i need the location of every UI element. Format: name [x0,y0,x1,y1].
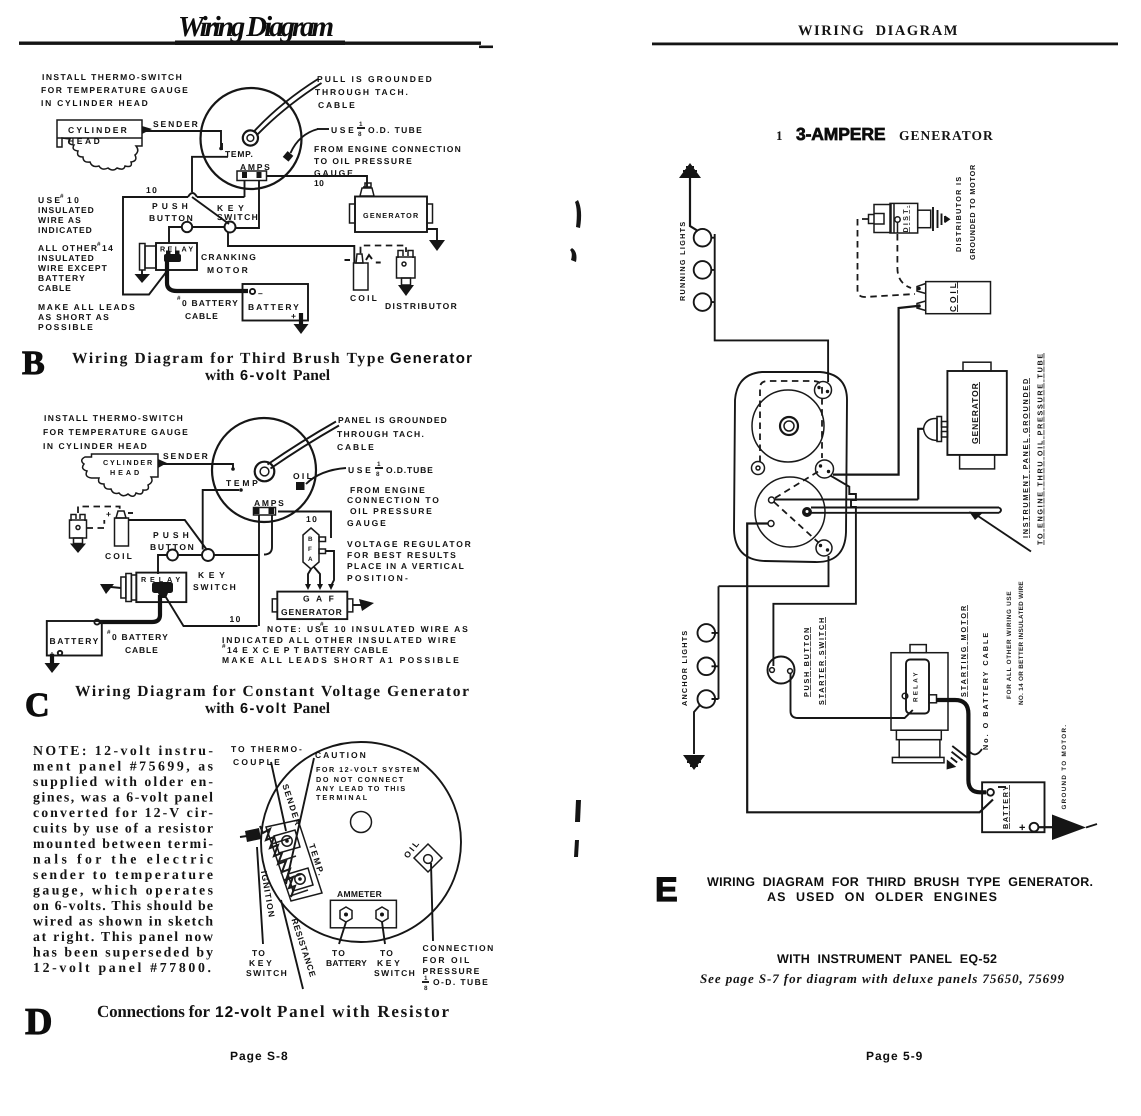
svg-text:+: + [291,311,297,321]
svg-text:#: # [177,295,181,302]
svg-text:CONNECTION TO: CONNECTION TO [347,495,440,505]
svg-text:PULL IS GROUNDED: PULL IS GROUNDED [317,74,433,84]
svg-text:FROM ENGINE: FROM ENGINE [350,485,426,495]
svg-text:AMMETER: AMMETER [337,889,383,899]
svg-text:CYLINDER: CYLINDER [68,125,128,135]
svg-text:Panel: Panel [293,700,331,717]
svg-text:#: # [320,621,324,628]
svg-text:TO ENGINE THRU OIL PRESSURE TU: TO ENGINE THRU OIL PRESSURE TUBE [1036,353,1045,545]
svg-text:CAUTION: CAUTION [315,750,367,760]
svg-text:1: 1 [424,975,428,982]
svg-text:with: with [205,700,235,717]
svg-text:GENERATOR: GENERATOR [281,607,343,617]
svg-text:+: + [1019,822,1027,834]
svg-text:KEY: KEY [377,958,401,968]
svg-text:INDICATED: INDICATED [38,225,93,235]
svg-text:PLACE IN A VERTICAL: PLACE IN A VERTICAL [347,561,465,571]
svg-text:DO NOT CONNECT: DO NOT CONNECT [316,775,404,784]
svg-text:BATTERY: BATTERY [326,958,368,968]
svg-text:INSULATED: INSULATED [38,253,95,263]
svg-text:TO: TO [380,948,394,958]
svg-text:SWITCH: SWITCH [193,582,237,592]
svg-text:KEY: KEY [198,570,226,580]
svg-text:Page S-8: Page S-8 [230,1049,289,1063]
svg-text:cuits by use of a resistor: cuits by use of a resistor [33,821,213,836]
svg-text:Wiring Diagram: Wiring Diagram [178,11,334,43]
svg-text:1: 1 [359,121,363,128]
svg-text:3-AMPERE: 3-AMPERE [796,124,886,144]
svg-text:GENERATOR: GENERATOR [899,128,995,143]
svg-text:GENERATOR: GENERATOR [970,382,980,444]
svg-text:STARTING MOTOR: STARTING MOTOR [959,605,968,697]
svg-text:C: C [25,687,50,724]
svg-text:0 BATTERY: 0 BATTERY [182,298,239,308]
svg-text:VOLTAGE REGULATOR: VOLTAGE REGULATOR [347,539,472,549]
svg-text:14 E X C E P T BATTERY CABLE: 14 E X C E P T BATTERY CABLE [227,645,389,655]
svg-text:PUSH BUTTON: PUSH BUTTON [802,627,811,697]
svg-text:FOR ALL OTHER WIRING USE: FOR ALL OTHER WIRING USE [1006,591,1013,699]
svg-text:10: 10 [306,514,318,524]
svg-text:gines, was a 6-volt panel: gines, was a 6-volt panel [33,790,213,806]
svg-text:O-D. TUBE: O-D. TUBE [433,977,489,987]
svg-text:HEAD: HEAD [68,136,101,146]
svg-text:DISTRIBUTOR IS: DISTRIBUTOR IS [954,176,963,252]
svg-text:DISTRIBUTOR: DISTRIBUTOR [385,301,458,311]
svg-text:CABLE: CABLE [185,311,219,321]
svg-text:F: F [308,546,312,553]
svg-text:FOR BEST RESULTS: FOR BEST RESULTS [347,550,457,560]
svg-text:INSTALL THERMO-SWITCH: INSTALL THERMO-SWITCH [42,72,183,82]
svg-text:1: 1 [776,128,783,143]
svg-text:AS USED ON OLDER ENGINES: AS USED ON OLDER ENGINES [767,890,997,904]
svg-text:GENERATOR: GENERATOR [363,211,419,220]
svg-text:10: 10 [146,185,158,195]
svg-text:Generator: Generator [390,350,472,367]
svg-text:O.D.TUBE: O.D.TUBE [386,465,434,475]
svg-text:mounted between termi-: mounted between termi- [33,836,213,851]
svg-text:CABLE: CABLE [125,645,159,655]
svg-text:10: 10 [230,614,242,624]
svg-text:SWITCH: SWITCH [217,212,259,222]
svg-text:PUSH: PUSH [153,530,190,540]
svg-text:12-volt panel #77800.: 12-volt panel #77800. [33,960,211,975]
svg-text:IN CYLINDER HEAD: IN CYLINDER HEAD [41,98,149,108]
svg-text:GAUGE: GAUGE [347,518,387,528]
svg-text:WIRE AS: WIRE AS [38,215,82,225]
svg-text:FOR TEMPERATURE GAUGE: FOR TEMPERATURE GAUGE [41,85,189,95]
svg-text:PANEL IS GROUNDED: PANEL IS GROUNDED [338,415,448,425]
svg-text:NOTE: 12-volt instru-: NOTE: 12-volt instru- [33,743,213,758]
svg-text:NO. 14 OR BETTER INSULATED: NO. 14 OR BETTER INSULATED WIRE [1018,581,1025,705]
svg-text:WITH INSTRUMENT PANEL EQ-52: WITH INSTRUMENT PANEL EQ-52 [777,952,997,966]
svg-text:12-volt: 12-volt [215,1004,271,1021]
svg-text:No. O BATTERY CABLE: No. O BATTERY CABLE [981,632,990,750]
svg-text:FOR TEMPERATURE GAUGE: FOR TEMPERATURE GAUGE [43,427,189,437]
svg-text:SENDER: SENDER [163,451,209,461]
svg-text:TO: TO [252,948,266,958]
svg-text:RUNNING LIGHTS: RUNNING LIGHTS [678,221,687,301]
svg-text:See page S-7 for diagram with: See page S-7 for diagram with deluxe pan… [700,971,1065,986]
svg-text:RELAY: RELAY [913,672,920,702]
svg-text:FROM ENGINE CONNECTION: FROM ENGINE CONNECTION [314,144,462,154]
svg-text:CYLINDER: CYLINDER [103,458,153,467]
svg-text:CONNECTION: CONNECTION [423,943,495,953]
svg-text:wired as shown in sketch: wired as shown in sketch [33,914,213,929]
svg-text:6-volt: 6-volt [240,368,286,384]
svg-text:USE 10: USE 10 [38,195,80,205]
svg-text:B: B [22,345,45,382]
svg-text:on 6-volts. This should be: on 6-volts. This should be [33,898,213,913]
svg-text:SWITCH: SWITCH [374,968,416,978]
svg-text:INSTRUMENT PANEL GROUNDED: INSTRUMENT PANEL GROUNDED [1021,378,1030,538]
svg-text:#: # [222,643,226,650]
svg-text:COUPLE: COUPLE [233,757,281,767]
svg-text:FOR 12-VOLT SYSTEM: FOR 12-VOLT SYSTEM [316,765,420,774]
svg-text:GROUND TO MOTOR.: GROUND TO MOTOR. [1061,725,1068,810]
svg-text:GROUNDED TO MOTOR: GROUNDED TO MOTOR [968,164,977,260]
svg-text:D: D [25,1001,52,1043]
svg-text:8: 8 [424,985,428,992]
svg-text:B: B [308,536,313,543]
svg-text:Wiring Diagram for Third Brush: Wiring Diagram for Third Brush Type [72,350,384,367]
svg-text:WIRE EXCEPT: WIRE EXCEPT [38,263,108,273]
svg-text:CABLE: CABLE [38,283,72,293]
svg-text:BATTERY: BATTERY [50,636,100,646]
svg-text:O.D. TUBE: O.D. TUBE [368,125,423,135]
svg-text:BATTERY: BATTERY [1001,785,1010,829]
svg-text:PUSH: PUSH [152,201,189,211]
svg-text:POSSIBLE: POSSIBLE [38,322,94,332]
svg-text:THROUGH TACH.: THROUGH TACH. [315,87,409,97]
svg-text:INDICATED ALL OTHER INSULATE: INDICATED ALL OTHER INSULATED WIRE [222,635,457,645]
svg-text:DIST.: DIST. [903,206,910,233]
svg-text:THROUGH TACH.: THROUGH TACH. [337,429,425,439]
svg-text:TO: TO [332,948,346,958]
svg-text:COIL: COIL [948,282,958,312]
svg-text:KEY: KEY [249,958,273,968]
svg-text:10: 10 [314,178,325,188]
svg-text:MOTOR: MOTOR [207,265,249,275]
svg-text:nals for the electric: nals for the electric [33,852,213,867]
svg-text:ANCHOR LIGHTS: ANCHOR LIGHTS [680,630,689,706]
svg-text:INSULATED: INSULATED [38,205,95,215]
svg-text:ANY LEAD TO THIS: ANY LEAD TO THIS [316,784,406,793]
svg-text:supplied with older en-: supplied with older en- [33,774,213,789]
svg-text:TEMP.: TEMP. [225,149,254,159]
svg-text:Panel with Resistor: Panel with Resistor [277,1002,449,1021]
svg-text:Panel: Panel [293,367,331,384]
svg-text:HEAD: HEAD [110,468,140,477]
svg-text:gauge, which operates: gauge, which operates [33,883,214,899]
svg-text:8: 8 [376,471,380,478]
svg-text:POSITION-: POSITION- [347,573,409,583]
svg-text:OIL: OIL [402,838,422,860]
svg-text:IN CYLINDER HEAD: IN CYLINDER HEAD [43,441,148,451]
svg-text:STARTER SWITCH: STARTER SWITCH [817,617,826,705]
svg-text:1: 1 [377,461,381,468]
svg-text:8: 8 [358,131,362,138]
svg-text:at right. This panel now: at right. This panel now [33,929,213,945]
svg-text:#: # [97,241,101,248]
svg-text:MAKE ALL LEADS: MAKE ALL LEADS [38,302,136,312]
svg-text:NOTE: USE 10 INSULATED WIRE A: NOTE: USE 10 INSULATED WIRE AS [267,624,469,634]
svg-text:SWITCH: SWITCH [246,968,288,978]
svg-text:+: + [106,509,112,519]
svg-text:CRANKING: CRANKING [201,252,257,262]
svg-text:Wiring Diagram for Constant Vo: Wiring Diagram for Constant Voltage Gene… [75,683,469,700]
svg-text:converted for 12-V cir-: converted for 12-V cir- [33,805,213,820]
svg-text:sender to temperature: sender to temperature [33,867,213,882]
svg-text:#: # [107,629,111,636]
svg-text:TO OIL PRESSURE: TO OIL PRESSURE [314,156,413,166]
svg-text:ALL OTHER 14: ALL OTHER 14 [38,243,114,253]
svg-text:with: with [205,367,235,384]
svg-text:SENDER: SENDER [153,119,199,129]
svg-text:TERMINAL: TERMINAL [316,793,368,802]
svg-text:CABLE: CABLE [337,442,375,452]
svg-text:WIRING DIAGRAM: WIRING DIAGRAM [798,23,960,39]
svg-text:PRESSURE: PRESSURE [423,966,481,976]
svg-text:AS SHORT AS: AS SHORT AS [38,312,110,322]
svg-text:Page 5-9: Page 5-9 [866,1049,923,1063]
svg-text:A: A [308,556,313,563]
svg-text:MAKE ALL LEADS SHORT A1 POSSIB: MAKE ALL LEADS SHORT A1 POSSIBLE [222,655,460,665]
svg-text:WIRING DIAGRAM FOR THIRD B: WIRING DIAGRAM FOR THIRD BRUSH TYPE GENE… [707,875,1093,889]
svg-text:FOR OIL: FOR OIL [423,955,471,965]
svg-text:USE: USE [331,125,355,135]
svg-text:has been superseded by: has been superseded by [33,945,213,960]
svg-text:Connections for: Connections for [97,1002,210,1021]
svg-text:CABLE: CABLE [318,100,356,110]
svg-text:BUTTON: BUTTON [150,542,195,552]
svg-text:USE: USE [348,465,372,475]
svg-text:AMPS: AMPS [254,498,285,508]
svg-text:0 BATTERY: 0 BATTERY [112,632,169,642]
svg-text:TEMP: TEMP [226,478,259,488]
svg-text:6-volt: 6-volt [240,701,286,717]
svg-text:G A F: G A F [303,594,335,604]
svg-text:COIL: COIL [105,551,133,561]
svg-text:COIL: COIL [350,293,378,303]
svg-text:OIL PRESSURE: OIL PRESSURE [350,506,433,516]
svg-text:INSTALL THERMO-SWITCH: INSTALL THERMO-SWITCH [44,413,184,423]
svg-text:TO THERMO-: TO THERMO- [231,744,303,754]
svg-text:–: – [258,288,264,298]
svg-text:BATTERY: BATTERY [38,273,86,283]
svg-text:ment panel #75699, as: ment panel #75699, as [33,759,214,774]
svg-text:E: E [655,871,678,909]
